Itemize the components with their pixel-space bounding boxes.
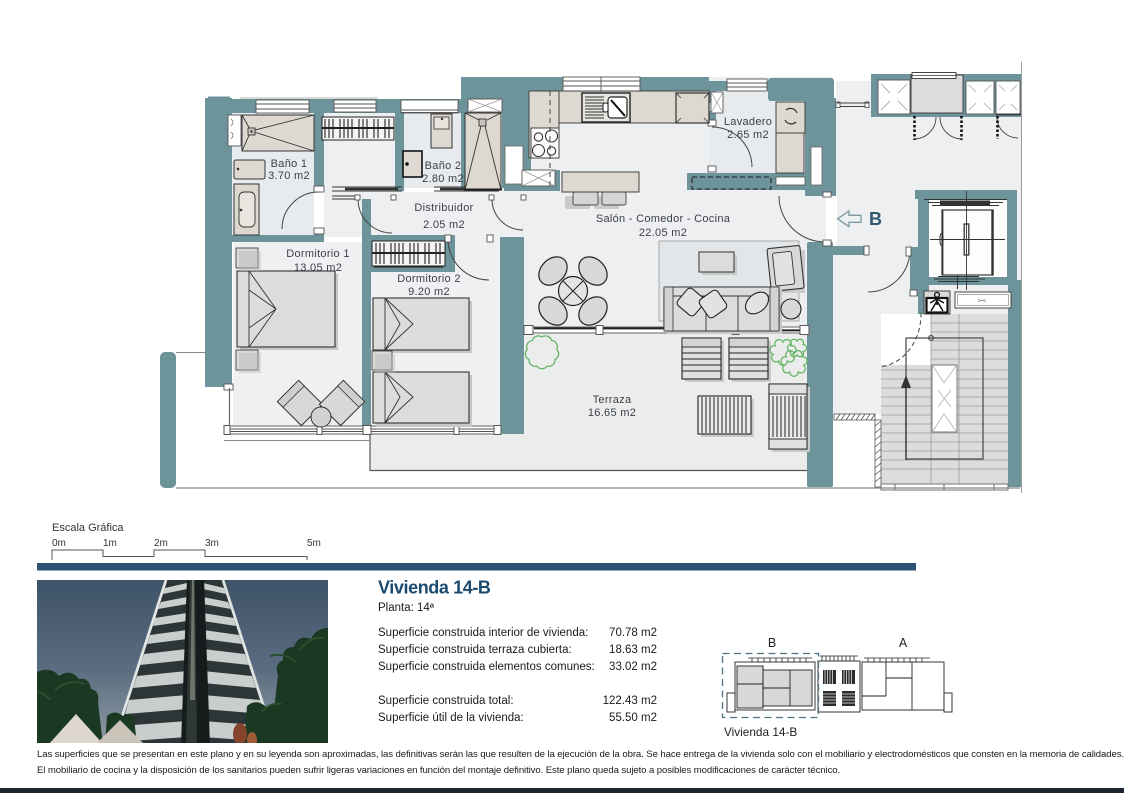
svg-text:Distribuidor: Distribuidor: [414, 202, 473, 214]
svg-text:2m: 2m: [154, 538, 168, 549]
svg-text:122.43 m2: 122.43 m2: [603, 695, 657, 707]
svg-text:Dormitorio 1: Dormitorio 1: [286, 248, 350, 260]
svg-text:2.80 m2: 2.80 m2: [422, 173, 464, 185]
svg-text:2.65 m2: 2.65 m2: [727, 129, 769, 141]
svg-text:Superficie construida total:: Superficie construida total:: [378, 695, 514, 707]
svg-text:0m: 0m: [52, 538, 66, 549]
svg-text:Terraza: Terraza: [593, 394, 632, 406]
svg-text:El mobiliario de cocina y la d: El mobiliario de cocina y la disposición…: [37, 765, 840, 776]
svg-text:Escala Gráfica: Escala Gráfica: [52, 522, 124, 534]
svg-text:22.05 m2: 22.05 m2: [639, 227, 687, 239]
svg-text:16.65 m2: 16.65 m2: [588, 407, 636, 419]
svg-text:70.78 m2: 70.78 m2: [609, 627, 657, 639]
svg-text:Superficie construida terraza: Superficie construida terraza cubierta:: [378, 644, 572, 656]
svg-text:Baño 1: Baño 1: [271, 158, 308, 170]
svg-text:Salón - Comedor - Cocina: Salón - Comedor - Cocina: [596, 213, 731, 225]
svg-text:B: B: [768, 636, 776, 650]
svg-text:B: B: [869, 209, 882, 229]
svg-text:Las superficies que se present: Las superficies que se presentan en este…: [37, 749, 1124, 760]
svg-text:3m: 3m: [205, 538, 219, 549]
svg-text:55.50 m2: 55.50 m2: [609, 712, 657, 724]
svg-text:Vivienda 14-B: Vivienda 14-B: [724, 725, 797, 739]
svg-text:Baño 2: Baño 2: [425, 160, 462, 172]
svg-text:Dormitorio 2: Dormitorio 2: [397, 273, 461, 285]
svg-text:33.02 m2: 33.02 m2: [609, 661, 657, 673]
svg-text:2.05 m2: 2.05 m2: [423, 219, 465, 231]
svg-text:Superficie construida elemento: Superficie construida elementos comunes:: [378, 661, 595, 673]
svg-text:Planta: 14ª: Planta: 14ª: [378, 602, 435, 614]
svg-text:3.70 m2: 3.70 m2: [268, 170, 310, 182]
svg-text:Superficie útil de la vivienda: Superficie útil de la vivienda:: [378, 712, 524, 724]
svg-text:5m: 5m: [307, 538, 321, 549]
svg-text:Vivienda 14-B: Vivienda 14-B: [378, 578, 491, 598]
svg-text:18.63 m2: 18.63 m2: [609, 644, 657, 656]
svg-text:1m: 1m: [103, 538, 117, 549]
svg-text:9.20 m2: 9.20 m2: [408, 286, 450, 298]
svg-text:Superficie construida interior: Superficie construida interior de vivien…: [378, 627, 588, 639]
svg-text:A: A: [899, 636, 908, 650]
svg-text:Lavadero: Lavadero: [724, 116, 772, 128]
